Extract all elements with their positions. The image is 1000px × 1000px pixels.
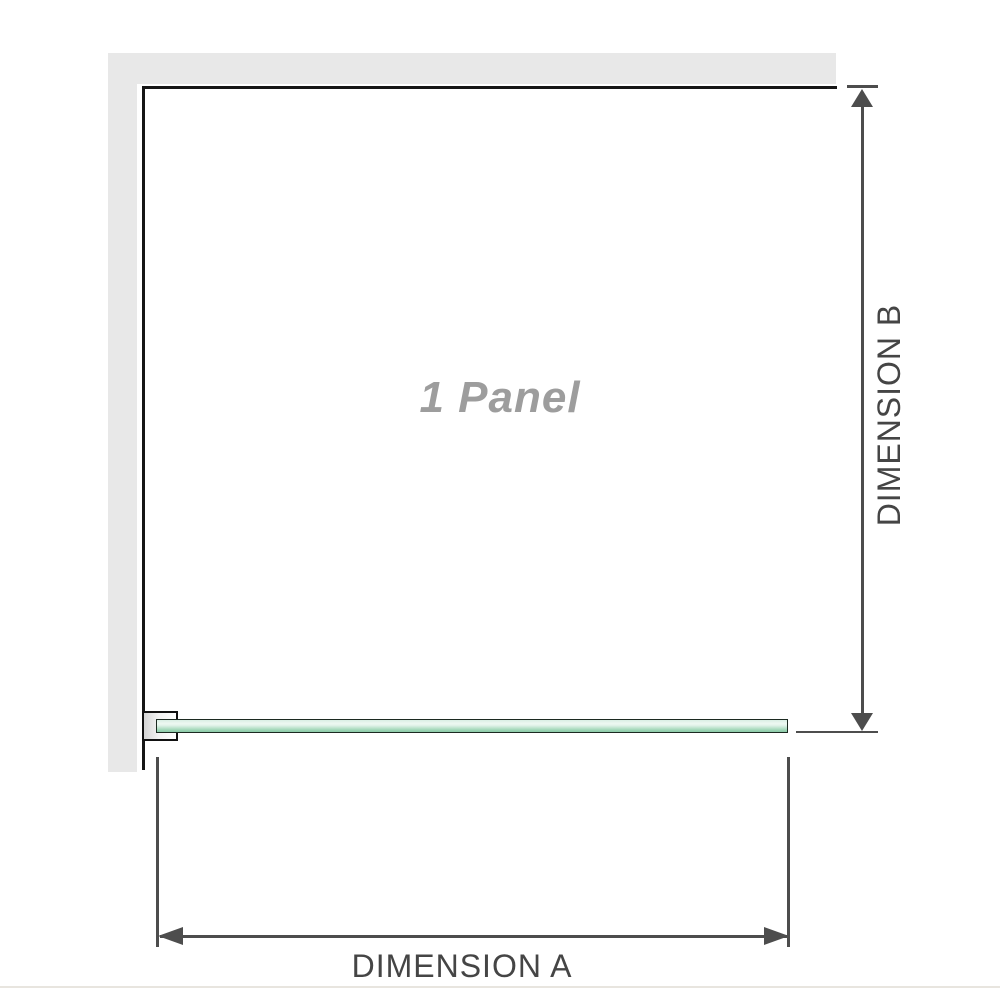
dimension-a-label: DIMENSION A <box>312 948 612 984</box>
glass-panel <box>156 719 788 733</box>
arrow-left-icon <box>158 927 183 945</box>
dimension-b-line <box>861 92 864 722</box>
enclosure-left-border <box>142 86 145 770</box>
enclosure-top-border <box>142 86 837 89</box>
arrow-up-icon <box>851 89 873 107</box>
arrow-down-icon <box>851 713 873 731</box>
image-bottom-edge-line <box>0 986 1000 988</box>
panel-count-label: 1 Panel <box>350 370 650 426</box>
arrow-right-icon <box>764 927 789 945</box>
dimension-diagram: 1 Panel DIMENSION B DIMENSION A <box>0 0 1000 1000</box>
dimension-a-right-extension-line <box>787 757 790 947</box>
dimension-b-bottom-tick <box>796 731 878 734</box>
wall-top-bar <box>108 53 836 84</box>
dimension-a-left-extension-line <box>156 757 159 947</box>
wall-left-bar <box>108 53 137 772</box>
dimension-b-label: DIMENSION B <box>871 265 907 565</box>
dimension-b-top-tick <box>847 85 878 88</box>
dimension-a-line <box>160 935 787 938</box>
